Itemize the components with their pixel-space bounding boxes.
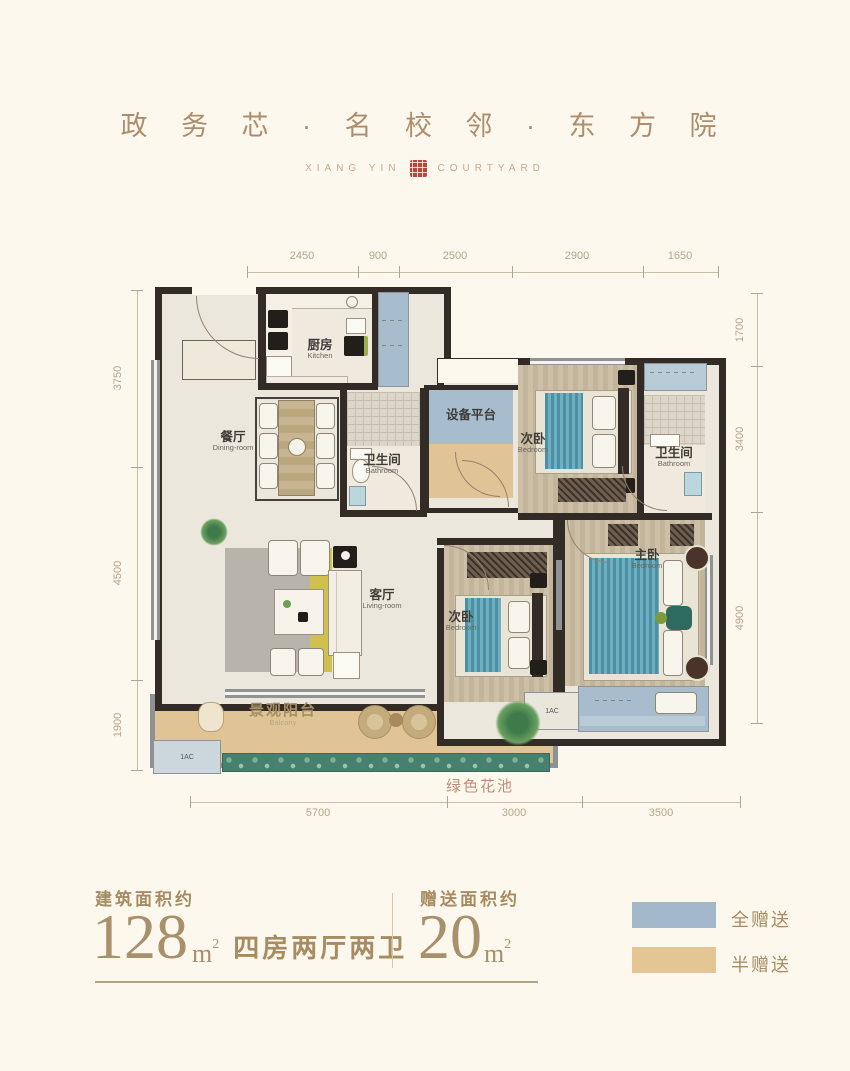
tick [582, 796, 583, 808]
dim-top-2: 2500 [415, 250, 495, 262]
area-built: 128 m2 四房两厅两卫 [92, 905, 407, 969]
area-built-unit: m2 [192, 937, 219, 969]
tick [512, 266, 513, 278]
dim-left-0: 3750 [112, 348, 124, 408]
dash-mark [650, 372, 698, 373]
dining-chair [316, 433, 335, 459]
dim-line-bottom [190, 802, 740, 803]
dash-mark [595, 700, 635, 701]
red-seal-icon [410, 160, 427, 177]
label-living: 客厅 Living-room [354, 588, 410, 611]
tick [358, 266, 359, 278]
tick [131, 290, 143, 291]
label-zh: 景观阳台 [238, 702, 328, 719]
nightstand [618, 370, 635, 385]
dim-bottom-1: 3000 [474, 807, 554, 819]
rug [608, 524, 638, 546]
tick [247, 266, 248, 278]
tick [131, 467, 143, 468]
tick [131, 770, 143, 771]
label-en: Bedroom [508, 446, 558, 455]
dim-line-right [757, 293, 758, 723]
round-table [684, 545, 710, 571]
armchair [268, 540, 298, 576]
label-en: Living-room [354, 602, 410, 611]
tick [751, 723, 763, 724]
stove-icon [268, 310, 288, 328]
label-zh: 卫生间 [354, 453, 410, 467]
label-zh: 主卧 [622, 548, 672, 562]
round-table [684, 655, 710, 681]
gift-strip-bath2 [644, 363, 707, 391]
tick [131, 680, 143, 681]
label-zh: 餐厅 [200, 430, 266, 444]
area-gift-value: 20 [418, 905, 482, 969]
window-dining [151, 360, 160, 640]
tick [190, 796, 191, 808]
fridge-icon [346, 318, 366, 334]
label-en: Dining-room [200, 444, 266, 453]
wall [258, 383, 378, 390]
gift-strip-master-band [580, 716, 705, 726]
label-green-bed: 绿色花池 [425, 775, 535, 796]
dim-left-1: 4500 [112, 543, 124, 603]
dim-bottom-2: 3500 [621, 807, 701, 819]
dim-line-top [247, 272, 718, 273]
sofa [328, 570, 362, 656]
dim-right-1: 3400 [734, 409, 746, 469]
fan-decor-icon [358, 705, 392, 739]
tick [740, 796, 741, 808]
tick [751, 293, 763, 294]
pillow [592, 434, 616, 468]
pillow [508, 637, 530, 669]
bed-cover [589, 558, 659, 674]
dim-top-1: 900 [348, 250, 408, 262]
decor-icon [655, 612, 667, 624]
dim-top-0: 2450 [262, 250, 342, 262]
label-bath1: 卫生间 Bathroom [354, 453, 410, 476]
area-gift-unit: m2 [484, 937, 511, 969]
page-title: 政 务 芯 · 名 校 邻 · 东 方 院 [0, 104, 850, 143]
dash-mark [382, 320, 403, 321]
tick [751, 512, 763, 513]
label-en: Bedroom [436, 624, 486, 633]
palm-icon [495, 700, 541, 746]
wall [340, 388, 347, 515]
tick [718, 266, 719, 278]
label-zh: 设备平台 [428, 408, 514, 422]
area-gift: 20 m2 [418, 905, 511, 969]
label-zh: 次卧 [508, 432, 558, 446]
label-zh: 卫生间 [646, 446, 702, 460]
pillow [663, 630, 683, 676]
dining-chair [259, 403, 278, 429]
wall [258, 287, 266, 387]
area-built-value: 128 [92, 905, 188, 969]
page-subtitle: XIANG YIN COURTYARD [0, 160, 850, 177]
legend-swatch-full [632, 902, 716, 928]
gift-strip-kitchen [378, 292, 409, 387]
label-bedroom3: 次卧 Bedroom [436, 610, 486, 633]
bed-cover [545, 393, 583, 469]
armchair [300, 540, 330, 576]
legend-swatch-half [632, 947, 716, 973]
entry-opening [192, 283, 256, 295]
dining-chair [316, 403, 335, 429]
wall [565, 513, 712, 520]
label-balcony: 景观阳台 Balcony [238, 702, 328, 728]
label-en: Bathroom [646, 460, 702, 469]
knob-icon [389, 713, 403, 727]
label-en: Bathroom [354, 467, 410, 476]
sofa-seam [336, 572, 337, 652]
dash-mark [382, 345, 403, 346]
pot-icon [198, 702, 224, 732]
label-zh: 厨房 [288, 338, 352, 352]
layout-desc: 四房两厅两卫 [233, 928, 407, 969]
speaker-cone [341, 551, 350, 560]
dim-bottom-0: 5700 [278, 807, 358, 819]
dim-top-3: 2900 [537, 250, 617, 262]
wall [340, 510, 427, 517]
window-balcony-door [225, 689, 425, 698]
table-plant-icon [283, 600, 291, 608]
legend-label-full: 全赠送 [731, 906, 791, 932]
rule [95, 981, 538, 983]
pillow [592, 396, 616, 430]
label-bedroom2: 次卧 Bedroom [508, 432, 558, 455]
table-plate-icon [288, 438, 306, 456]
dining-chair [259, 463, 278, 489]
tick [399, 266, 400, 278]
rug [670, 524, 694, 546]
label-zh: 次卧 [436, 610, 486, 624]
dim-right-2: 4900 [734, 588, 746, 648]
tick [643, 266, 644, 278]
nightstand [530, 660, 547, 675]
rug [558, 478, 626, 502]
label-dining: 餐厅 Dining-room [200, 430, 266, 453]
wall-gray-inset [556, 560, 562, 630]
bench-icon [666, 606, 692, 630]
stool [270, 648, 296, 676]
dim-left-2: 1900 [112, 695, 124, 755]
subtitle-right: COURTYARD [437, 163, 544, 174]
pillow [508, 601, 530, 633]
plant-icon [200, 518, 228, 546]
dim-line-left [137, 290, 138, 770]
dim-right-0: 1700 [734, 300, 746, 360]
divider [392, 893, 393, 968]
stove-icon [268, 332, 288, 350]
dining-chair [316, 463, 335, 489]
shell-notch [438, 359, 518, 383]
shower-icon [684, 472, 702, 496]
label-en: Kitchen [288, 352, 352, 361]
stool [298, 648, 324, 676]
label-kitchen: 厨房 Kitchen [288, 338, 352, 361]
window-master [704, 555, 713, 665]
room-bath1-tiled [347, 392, 420, 446]
label-bath2: 卫生间 Bathroom [646, 446, 702, 469]
green-flower-bed [222, 753, 550, 772]
label-zh: 客厅 [354, 588, 410, 602]
legend-label-half: 半赠送 [731, 951, 791, 977]
table-item [298, 612, 308, 622]
label-en: Balcony [238, 719, 328, 728]
fan-decor-icon [402, 705, 436, 739]
tick [447, 796, 448, 808]
label-master: 主卧 Bedroom [622, 548, 672, 571]
kitchen-sink-icon [346, 296, 358, 308]
lounge-cushion [655, 692, 697, 714]
wall [437, 538, 553, 545]
subtitle-left: XIANG YIN [305, 163, 400, 174]
nightstand [530, 573, 547, 588]
label-equipment: 设备平台 [428, 408, 514, 422]
dim-top-4: 1650 [640, 250, 720, 262]
ac-platform-left: 1AC [153, 740, 221, 774]
headboard [618, 388, 629, 474]
label-en: Bedroom [622, 562, 672, 571]
side-table [333, 652, 360, 679]
tick [751, 366, 763, 367]
sink-icon [349, 486, 366, 506]
